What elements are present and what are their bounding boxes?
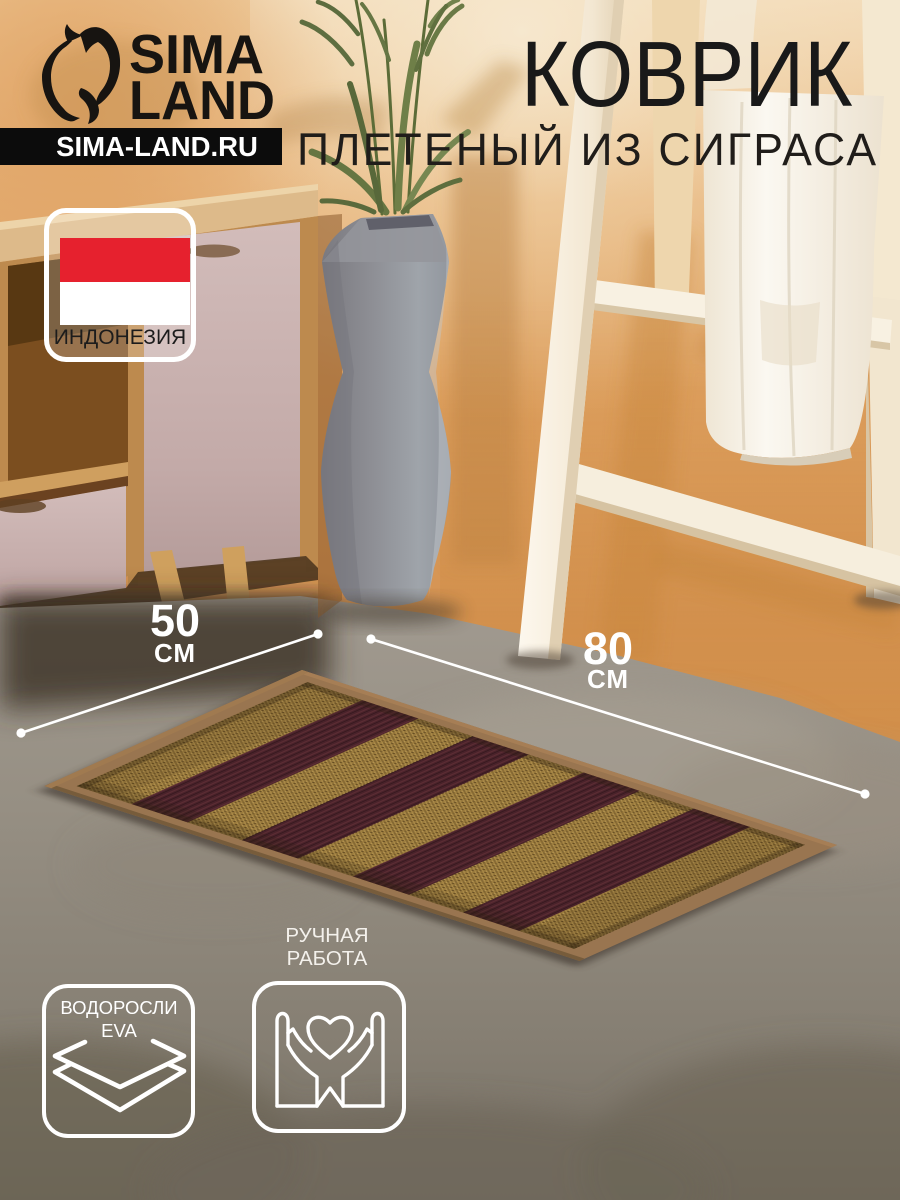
svg-text:LAND: LAND	[129, 69, 275, 130]
